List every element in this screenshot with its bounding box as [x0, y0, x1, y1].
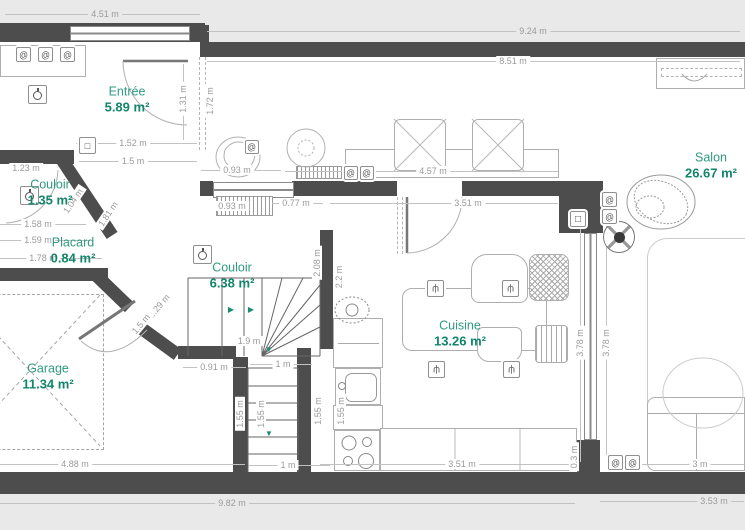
wall: [178, 346, 236, 359]
room-area: 1.35 m²: [28, 193, 73, 209]
wall: [292, 181, 391, 196]
room-label-couloir1[interactable]: Couloir1.35 m²: [28, 178, 73, 209]
dimension-label: 8.51 m: [496, 56, 530, 66]
arrow-right-icon: [226, 304, 236, 314]
floor-plan: 4.51 m9.24 m8.51 m1.31 m1.72 m1.52 m1.5 …: [0, 0, 745, 530]
room-name: Placard: [51, 236, 96, 251]
bar-stool[interactable]: [472, 119, 524, 171]
wall-sconce-icon[interactable]: [360, 166, 374, 180]
dimension-label: 1.58 m: [21, 219, 55, 229]
dining-chair[interactable]: [471, 254, 528, 303]
dimension-label: 9.24 m: [516, 26, 550, 36]
dimension-line: [207, 31, 740, 32]
wall: [200, 42, 745, 57]
spotlight-icon[interactable]: [428, 361, 445, 378]
door-opening-dashed: [397, 197, 398, 254]
room-name: Salon: [685, 151, 737, 166]
slatted-chair[interactable]: [535, 325, 568, 363]
dimension-label: 1.72 m: [205, 84, 215, 118]
dimension-label: 4.51 m: [88, 9, 122, 19]
wall: [391, 181, 397, 196]
room-name: Couloir: [210, 261, 255, 276]
room-area: 6.38 m²: [210, 276, 255, 292]
dimension-label: 3.78 m: [601, 326, 611, 360]
dimension-label: 4.88 m: [58, 459, 92, 469]
dimension-label: 1.31 m: [178, 82, 188, 116]
window[interactable]: [70, 26, 190, 41]
room-area: 26.67 m²: [685, 166, 737, 182]
spotlight-icon[interactable]: [427, 280, 444, 297]
bar-counter[interactable]: [345, 149, 559, 178]
room-area: 5.89 m²: [105, 100, 150, 116]
wall: [195, 25, 209, 42]
dimension-label: 1 m: [272, 359, 293, 369]
tv-outlet-icon[interactable]: [570, 211, 586, 227]
wall-sconce-icon[interactable]: [625, 455, 640, 470]
dimension-line: [0, 503, 575, 504]
desk[interactable]: [656, 58, 745, 89]
spotlight-icon[interactable]: [503, 361, 520, 378]
room-label-couloir2[interactable]: Couloir6.38 m²: [210, 261, 255, 292]
room-boundary-dashed: [199, 57, 200, 150]
bar-stool[interactable]: [394, 119, 446, 171]
dimension-label: 0.77 m: [279, 198, 313, 208]
wall-sconce-icon[interactable]: [608, 455, 623, 470]
dimension-label: 0.91 m: [197, 362, 231, 372]
room-name: Cuisine: [434, 319, 486, 334]
room-name: Garage: [22, 362, 73, 377]
wall-sconce-icon[interactable]: [602, 209, 617, 224]
wall-switch-icon[interactable]: [60, 47, 75, 62]
kitchen-cabinet[interactable]: [333, 318, 383, 368]
dimension-label: 1.55 m: [313, 394, 323, 428]
dimension-label: 3.78 m: [575, 326, 585, 360]
dimension-label: 0.93 m: [215, 201, 249, 211]
room-label-garage[interactable]: Garage11.34 m²: [22, 362, 73, 393]
dimension-line: [330, 203, 558, 204]
dimension-label: 3.53 m: [697, 496, 731, 506]
wall-sconce-icon[interactable]: [344, 166, 358, 180]
dimension-label: 2.08 m: [312, 246, 322, 280]
wall-switch-icon[interactable]: [16, 47, 31, 62]
wall-switch-icon[interactable]: [245, 140, 259, 154]
sink-faucet: [338, 382, 346, 390]
dimension-label: 1.5 m: [119, 156, 148, 166]
dimension-label: 0.93 m: [220, 165, 254, 175]
ceiling-fan-icon[interactable]: [603, 221, 635, 253]
wall-control-icon[interactable]: [79, 137, 96, 154]
window-glazing[interactable]: [584, 233, 597, 440]
sink-basin: [345, 373, 377, 402]
dimension-label: 2.2 m: [334, 263, 344, 292]
room-name: Couloir: [28, 178, 73, 193]
pendant-light-icon[interactable]: [28, 85, 47, 104]
room-label-entree[interactable]: Entrée5.89 m²: [105, 85, 150, 116]
wall: [297, 348, 311, 472]
dimension-label: 1.55 m: [256, 397, 266, 431]
dimension-label: 4.57 m: [416, 166, 450, 176]
dimension-label: 3 m: [689, 459, 710, 469]
dimension-line: [207, 61, 740, 62]
room-area: 11.34 m²: [22, 377, 73, 393]
dimension-label: 9.82 m: [215, 498, 249, 508]
cabinet-line: [338, 343, 379, 344]
dimension-label: 1.55 m: [336, 394, 346, 428]
arrow-down-icon: [264, 428, 274, 438]
wall-sconce-icon[interactable]: [602, 192, 617, 207]
desk-keyboard-tray: [661, 68, 742, 77]
radiator[interactable]: [296, 166, 348, 179]
dimension-line: [0, 464, 245, 465]
dimension-label: 1.9 m: [235, 336, 264, 346]
room-label-cuisine[interactable]: Cuisine13.26 m²: [434, 319, 486, 350]
wall: [200, 181, 213, 196]
room-area: 0.84 m²: [51, 251, 96, 267]
wall-switch-icon[interactable]: [38, 47, 53, 62]
wall: [462, 181, 560, 196]
dimension-label: 1.23 m: [9, 163, 43, 173]
arrow-right-icon: [246, 304, 256, 314]
dimension-label: 3.51 m: [451, 198, 485, 208]
room-area: 13.26 m²: [434, 334, 486, 350]
spotlight-icon[interactable]: [502, 280, 519, 297]
dimension-label: 1.55 m: [235, 397, 245, 431]
door-opening-dashed: [402, 197, 403, 254]
dimension-label: 0.3 m: [569, 443, 579, 472]
room-label-salon[interactable]: Salon26.67 m²: [685, 151, 737, 182]
wall: [0, 472, 745, 494]
arrow-down-icon: [264, 344, 274, 354]
dimension-label: 1 m: [277, 460, 298, 470]
rattan-chair[interactable]: [529, 254, 569, 301]
dimension-label: 3.51 m: [445, 459, 479, 469]
dimension-label: 1.52 m: [116, 138, 150, 148]
room-label-placard[interactable]: Placard0.84 m²: [51, 236, 96, 267]
room-name: Entrée: [105, 85, 150, 100]
